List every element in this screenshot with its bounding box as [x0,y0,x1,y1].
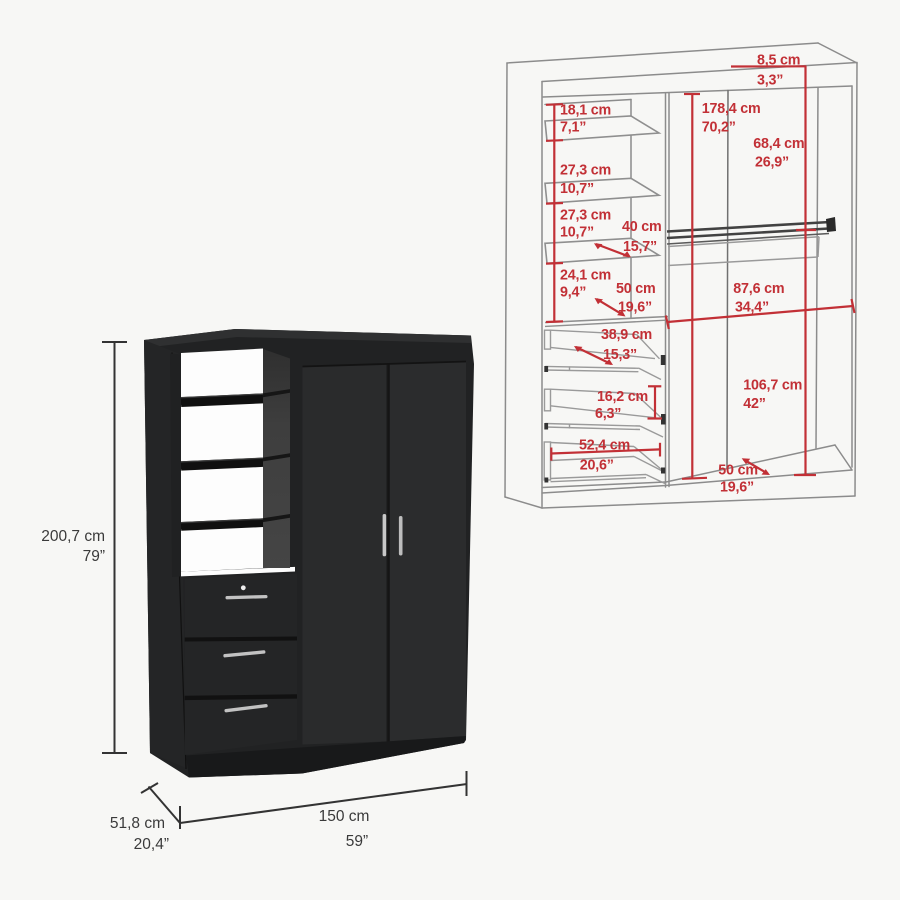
svg-text:8,5 cm: 8,5 cm [757,53,800,69]
svg-text:26,9”: 26,9” [755,155,789,171]
svg-text:106,7 cm: 106,7 cm [743,378,802,394]
svg-text:27,3 cm: 27,3 cm [560,163,611,179]
svg-text:24,1 cm: 24,1 cm [560,268,611,284]
svg-text:87,6 cm: 87,6 cm [733,281,784,297]
svg-text:200,7 cm: 200,7 cm [41,528,105,545]
svg-text:9,4”: 9,4” [560,285,586,301]
svg-text:42”: 42” [743,396,766,412]
svg-text:79”: 79” [83,548,105,565]
svg-text:59”: 59” [346,833,368,850]
svg-text:150 cm: 150 cm [319,808,370,825]
svg-text:34,4”: 34,4” [735,300,769,316]
svg-text:19,6”: 19,6” [618,300,652,316]
svg-text:51,8 cm: 51,8 cm [110,815,165,832]
svg-text:178,4 cm: 178,4 cm [702,101,761,117]
svg-text:15,3”: 15,3” [603,347,637,363]
svg-text:10,7”: 10,7” [560,225,594,241]
svg-text:18,1 cm: 18,1 cm [560,103,611,119]
svg-text:10,7”: 10,7” [560,181,594,197]
svg-text:70,2”: 70,2” [702,120,736,136]
svg-text:7,1”: 7,1” [560,120,586,136]
svg-text:3,3”: 3,3” [757,73,783,89]
svg-text:27,3 cm: 27,3 cm [560,208,611,224]
svg-text:52,4 cm: 52,4 cm [579,438,630,454]
svg-text:16,2 cm: 16,2 cm [597,389,648,405]
svg-text:40 cm: 40 cm [622,219,662,235]
svg-text:68,4 cm: 68,4 cm [753,136,804,152]
svg-text:20,6”: 20,6” [580,458,614,474]
svg-text:19,6”: 19,6” [720,480,754,496]
svg-text:50 cm: 50 cm [718,463,758,479]
svg-text:6,3”: 6,3” [595,406,621,422]
svg-text:15,7”: 15,7” [623,239,657,255]
svg-text:20,4”: 20,4” [134,836,169,853]
svg-text:50 cm: 50 cm [616,281,656,297]
svg-text:38,9 cm: 38,9 cm [601,327,652,343]
